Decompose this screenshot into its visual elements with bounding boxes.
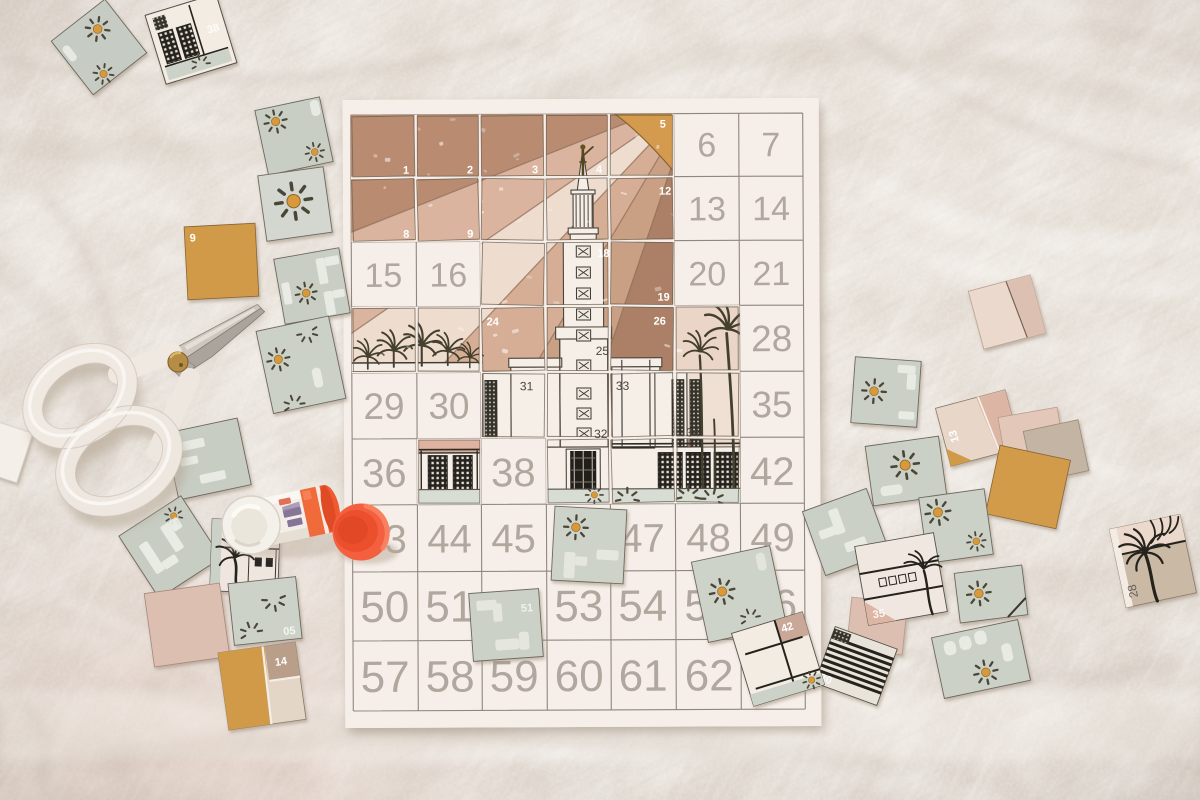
svg-text:34: 34 — [686, 425, 700, 439]
svg-text:21: 21 — [752, 255, 790, 293]
svg-text:13: 13 — [688, 190, 726, 228]
svg-text:38: 38 — [491, 451, 536, 495]
svg-text:35: 35 — [872, 607, 886, 621]
svg-text:50: 50 — [360, 583, 409, 632]
svg-text:8: 8 — [403, 229, 409, 241]
svg-text:35: 35 — [751, 384, 792, 425]
svg-text:29: 29 — [363, 386, 404, 427]
svg-text:62: 62 — [685, 651, 734, 700]
svg-text:20: 20 — [688, 255, 726, 293]
svg-text:16: 16 — [429, 256, 467, 294]
svg-text:7: 7 — [761, 126, 780, 164]
svg-text:33: 33 — [616, 379, 630, 393]
svg-text:31: 31 — [520, 379, 534, 393]
svg-text:51: 51 — [425, 582, 474, 631]
svg-text:14: 14 — [752, 190, 790, 228]
svg-text:1: 1 — [403, 165, 409, 177]
svg-text:25: 25 — [596, 344, 610, 358]
svg-text:18: 18 — [597, 248, 609, 260]
svg-text:36: 36 — [362, 452, 407, 496]
svg-text:6: 6 — [697, 126, 716, 164]
svg-text:58: 58 — [426, 652, 475, 701]
svg-text:05: 05 — [283, 625, 296, 638]
svg-text:42: 42 — [750, 450, 795, 494]
svg-text:60: 60 — [555, 652, 604, 701]
svg-text:32: 32 — [594, 427, 608, 441]
svg-text:19: 19 — [657, 292, 669, 304]
svg-text:9: 9 — [189, 232, 196, 244]
svg-text:9: 9 — [467, 228, 473, 240]
svg-text:44: 44 — [427, 517, 472, 561]
svg-text:48: 48 — [686, 516, 731, 560]
svg-text:51: 51 — [520, 602, 533, 615]
svg-text:61: 61 — [619, 652, 668, 701]
svg-text:28: 28 — [751, 318, 792, 359]
svg-text:4: 4 — [596, 164, 603, 176]
svg-text:5: 5 — [660, 119, 666, 131]
svg-text:24: 24 — [487, 316, 500, 328]
svg-text:30: 30 — [428, 385, 469, 426]
svg-text:53: 53 — [554, 582, 603, 631]
svg-text:47: 47 — [620, 517, 665, 561]
svg-text:45: 45 — [491, 517, 536, 561]
svg-text:2: 2 — [467, 164, 473, 176]
svg-text:3: 3 — [532, 164, 538, 176]
svg-text:15: 15 — [364, 257, 402, 295]
svg-text:57: 57 — [361, 653, 410, 702]
svg-text:26: 26 — [654, 316, 666, 328]
svg-text:54: 54 — [618, 582, 667, 631]
svg-text:12: 12 — [659, 186, 671, 198]
